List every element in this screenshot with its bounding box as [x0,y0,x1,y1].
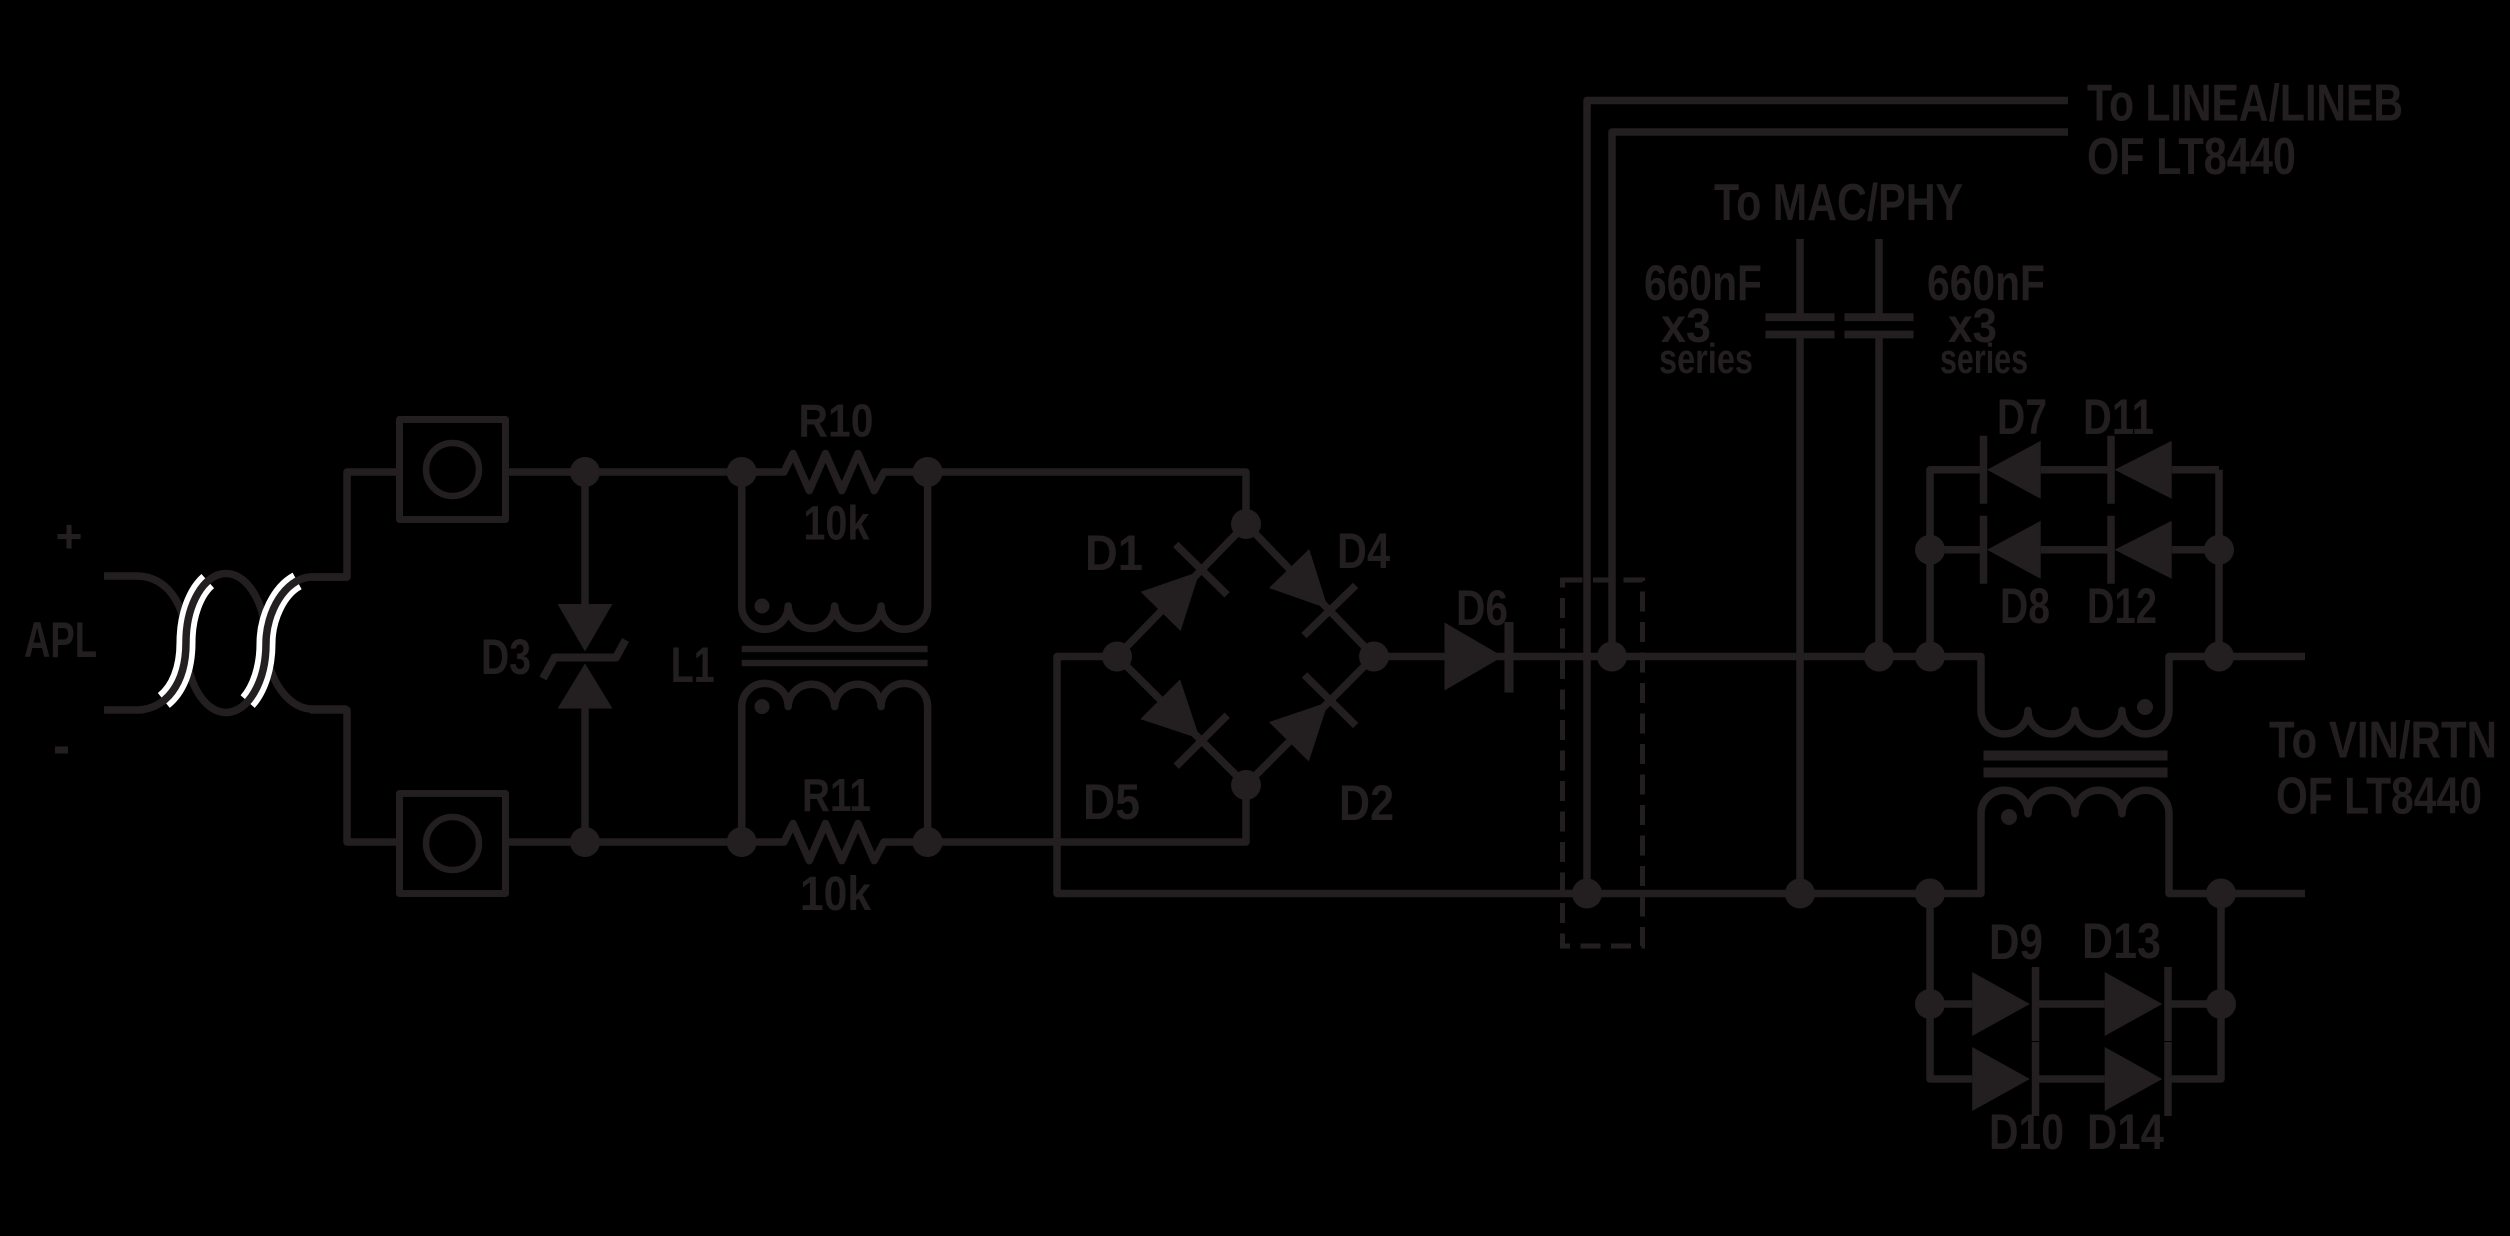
svg-text:To MAC/PHY: To MAC/PHY [1714,174,1963,232]
svg-text:+: + [56,510,83,562]
svg-text:D9: D9 [1989,914,2043,970]
svg-text:APL: APL [24,612,97,668]
svg-text:D3: D3 [481,629,531,685]
svg-text:D13: D13 [2082,913,2161,969]
svg-text:To VIN/RTN: To VIN/RTN [2269,712,2497,770]
svg-text:R10: R10 [799,395,874,447]
svg-text:D1: D1 [1085,525,1143,581]
svg-text:10k: 10k [803,498,869,551]
svg-text:To LINEA/LINEB: To LINEA/LINEB [2087,75,2403,133]
svg-text:OF LT8440: OF LT8440 [2087,128,2296,186]
svg-text:L1: L1 [671,637,715,693]
svg-text:D14: D14 [2087,1104,2164,1160]
svg-text:OF LT8440: OF LT8440 [2276,768,2482,826]
svg-text:D6: D6 [1456,580,1508,636]
svg-text:R11: R11 [802,769,871,821]
svg-text:D11: D11 [2083,389,2154,445]
svg-text:D10: D10 [1989,1104,2064,1160]
svg-text:D7: D7 [1997,389,2047,445]
svg-text:series: series [1940,335,2028,382]
svg-text:D12: D12 [2087,578,2157,634]
svg-text:D2: D2 [1339,775,1394,831]
svg-text:10k: 10k [800,868,871,921]
svg-text:D4: D4 [1337,523,1390,579]
svg-text:D5: D5 [1083,774,1140,830]
svg-text:D8: D8 [2000,578,2050,634]
svg-text:series: series [1659,335,1753,382]
